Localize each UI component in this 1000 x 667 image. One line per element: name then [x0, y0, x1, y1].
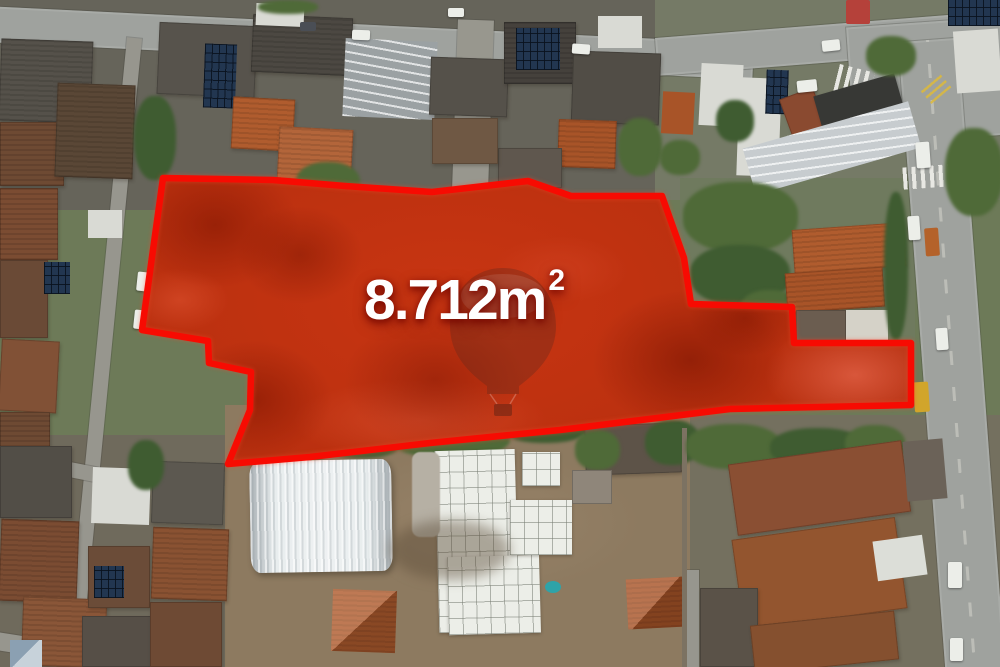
- pool: [545, 581, 561, 593]
- roof: [557, 119, 617, 169]
- car: [300, 22, 316, 31]
- tree: [660, 140, 700, 175]
- tarp-roof: [10, 640, 42, 667]
- roof: [953, 29, 1000, 94]
- tree: [128, 440, 164, 490]
- roof: [0, 339, 60, 414]
- construction-panels: [510, 500, 572, 555]
- car: [352, 30, 370, 41]
- roof: [626, 577, 687, 630]
- solar-panel-array: [948, 0, 1000, 26]
- crosswalk: [902, 164, 949, 189]
- roof: [429, 57, 509, 118]
- truck: [924, 228, 940, 257]
- area-value: 8.712m: [364, 272, 545, 329]
- warehouse-building: [249, 459, 393, 573]
- bus: [913, 382, 930, 413]
- ground-shadow: [390, 520, 510, 580]
- solar-panel-array: [203, 43, 237, 108]
- truck: [846, 0, 870, 24]
- car: [950, 638, 963, 661]
- car: [796, 79, 817, 93]
- metal-roof: [342, 38, 437, 120]
- roof: [785, 267, 886, 314]
- car: [915, 142, 931, 169]
- aerial-photo: 8.712m 2: [0, 0, 1000, 667]
- roof: [0, 519, 79, 604]
- car: [821, 39, 840, 52]
- car: [935, 328, 949, 351]
- car: [448, 8, 464, 17]
- hedge: [884, 192, 908, 340]
- palm-tree: [716, 100, 754, 142]
- area-label: 8.712m 2: [364, 272, 563, 329]
- tree: [575, 430, 620, 470]
- roof: [571, 50, 661, 125]
- roof: [0, 188, 58, 260]
- tree: [134, 96, 176, 180]
- roof: [846, 310, 888, 340]
- roof: [150, 602, 222, 667]
- roof: [598, 16, 642, 48]
- solar-panel-array: [44, 262, 70, 294]
- tree: [618, 118, 662, 176]
- roof: [902, 438, 947, 501]
- construction-panels: [522, 452, 560, 486]
- shed: [572, 470, 612, 504]
- roof: [872, 535, 927, 582]
- fence: [682, 428, 687, 667]
- car: [136, 271, 149, 291]
- roof: [54, 83, 135, 180]
- tree: [866, 36, 916, 76]
- solar-panel-array: [516, 28, 560, 70]
- roof: [796, 310, 846, 342]
- area-unit-superscript: 2: [548, 266, 563, 296]
- car: [948, 562, 962, 588]
- roof: [88, 210, 122, 238]
- car: [572, 43, 591, 54]
- tree: [945, 128, 1000, 216]
- roof: [432, 118, 498, 164]
- roof: [151, 527, 229, 602]
- roof: [661, 91, 695, 135]
- solar-panel-array: [94, 566, 124, 598]
- roof: [0, 446, 72, 518]
- roof: [82, 616, 156, 667]
- roof: [331, 589, 397, 653]
- roof: [0, 260, 48, 338]
- car: [907, 216, 921, 241]
- tree: [683, 182, 798, 252]
- hedge: [258, 0, 318, 14]
